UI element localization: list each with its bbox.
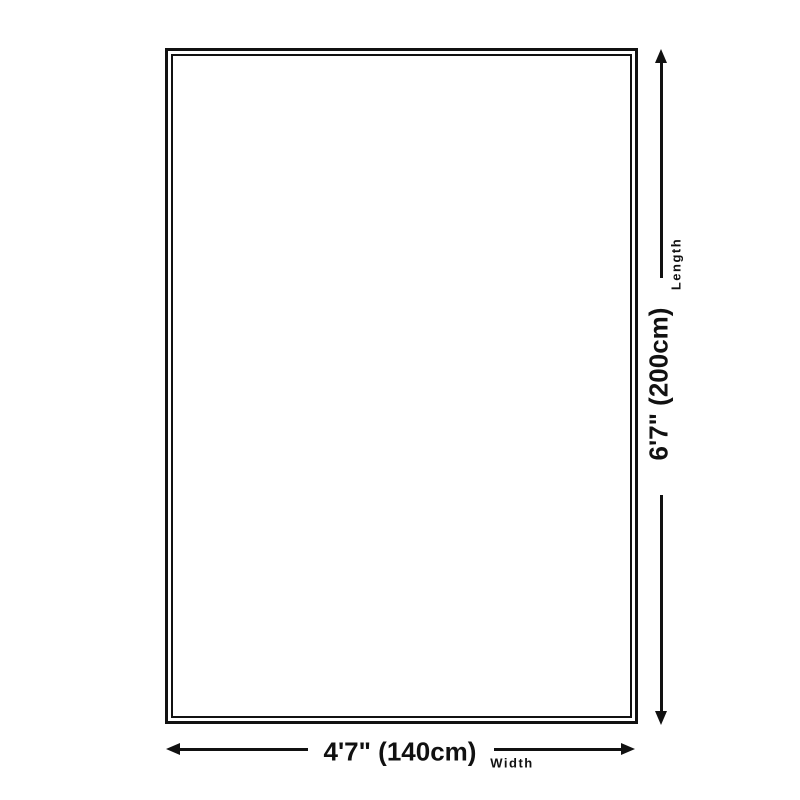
length-dimension-line-top — [660, 62, 663, 278]
length-dimension-line-bottom — [660, 495, 663, 711]
width-axis-label: Width — [490, 756, 533, 771]
rug-outline — [165, 48, 638, 724]
rug-inner-border — [171, 54, 632, 718]
arrow-down-icon — [655, 711, 667, 725]
length-axis-label: Length — [669, 238, 684, 290]
rug-dimension-diagram: Length 6'7" (200cm) 4'7" (140cm) Width — [0, 0, 800, 800]
arrow-right-icon — [621, 743, 635, 755]
length-value: 6'7" (200cm) — [644, 308, 675, 461]
width-value: 4'7" (140cm) — [324, 737, 477, 768]
arrow-left-icon — [166, 743, 180, 755]
arrow-up-icon — [655, 49, 667, 63]
width-dimension-line-left — [180, 748, 308, 751]
width-dimension-line-right — [494, 748, 621, 751]
